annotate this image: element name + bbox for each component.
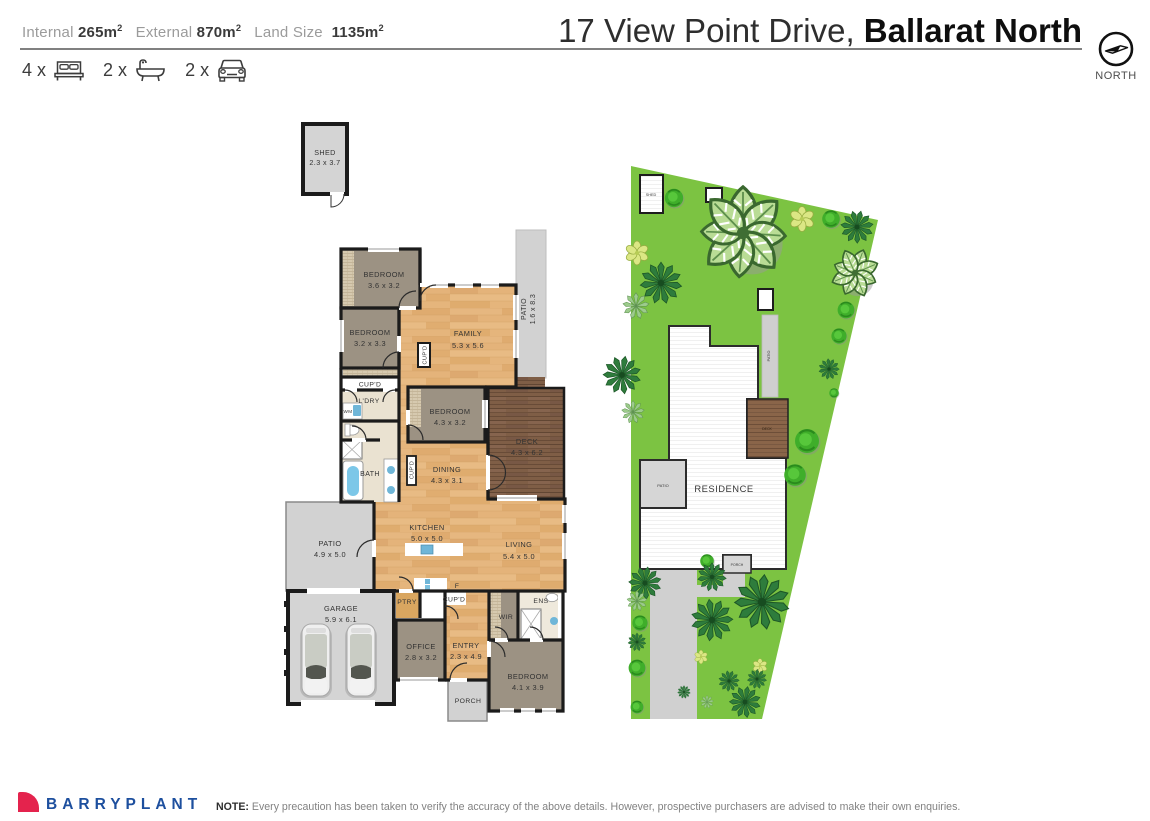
svg-text:PATIO: PATIO <box>767 351 771 362</box>
svg-text:GARAGE: GARAGE <box>324 604 358 613</box>
svg-text:CUP'D: CUP'D <box>423 346 429 365</box>
svg-text:4.3 x 3.2: 4.3 x 3.2 <box>434 418 466 427</box>
svg-text:4.9 x 5.0: 4.9 x 5.0 <box>314 550 346 559</box>
svg-text:WM: WM <box>344 409 353 414</box>
svg-text:BEDROOM: BEDROOM <box>430 407 471 416</box>
svg-text:BATH: BATH <box>360 471 380 478</box>
svg-text:ENS: ENS <box>533 598 548 605</box>
svg-text:WIR: WIR <box>499 614 513 621</box>
svg-text:PORCH: PORCH <box>455 698 482 705</box>
svg-text:SHED: SHED <box>314 148 336 157</box>
svg-text:DINING: DINING <box>433 465 461 474</box>
svg-text:F: F <box>455 583 460 590</box>
svg-text:PORCH: PORCH <box>731 563 744 567</box>
svg-text:BEDROOM: BEDROOM <box>364 270 405 279</box>
svg-text:CUP'D: CUP'D <box>443 597 466 604</box>
svg-text:BEDROOM: BEDROOM <box>350 328 391 337</box>
svg-text:2.3 x 3.7: 2.3 x 3.7 <box>309 158 340 167</box>
svg-text:5.9 x 6.1: 5.9 x 6.1 <box>325 615 357 624</box>
svg-text:BEDROOM: BEDROOM <box>508 672 549 681</box>
svg-text:DECK: DECK <box>762 427 772 431</box>
svg-text:5.3 x 5.6: 5.3 x 5.6 <box>452 341 484 350</box>
svg-text:3.6 x 3.2: 3.6 x 3.2 <box>368 281 400 290</box>
svg-text:4.3 x 6.2: 4.3 x 6.2 <box>511 448 543 457</box>
svg-text:ENTRY: ENTRY <box>453 641 480 650</box>
svg-text:CUP'D: CUP'D <box>359 382 382 389</box>
svg-text:2.8 x 3.2: 2.8 x 3.2 <box>405 653 437 662</box>
svg-text:PTRY: PTRY <box>397 599 417 606</box>
svg-text:OFFICE: OFFICE <box>406 642 436 651</box>
svg-text:SHED: SHED <box>646 193 657 197</box>
svg-text:L'DRY: L'DRY <box>358 398 379 405</box>
svg-text:KITCHEN: KITCHEN <box>409 523 444 532</box>
svg-text:PATIO: PATIO <box>318 539 341 548</box>
svg-text:4.3 x 3.1: 4.3 x 3.1 <box>431 476 463 485</box>
svg-text:5.4 x 5.0: 5.4 x 5.0 <box>503 552 535 561</box>
svg-text:CUP'D: CUP'D <box>410 461 416 479</box>
svg-text:2.3 x 4.9: 2.3 x 4.9 <box>450 652 482 661</box>
svg-text:DECK: DECK <box>516 437 538 446</box>
svg-text:4.1 x 3.9: 4.1 x 3.9 <box>512 683 544 692</box>
svg-text:PATIO: PATIO <box>657 483 668 488</box>
svg-text:PATIO: PATIO <box>521 298 528 320</box>
svg-text:LIVING: LIVING <box>506 540 533 549</box>
svg-text:FAMILY: FAMILY <box>454 329 482 338</box>
svg-text:RESIDENCE: RESIDENCE <box>694 483 753 494</box>
svg-text:1.6 x 8.3: 1.6 x 8.3 <box>530 294 537 324</box>
svg-text:3.2 x 3.3: 3.2 x 3.3 <box>354 339 386 348</box>
svg-text:5.0 x 5.0: 5.0 x 5.0 <box>411 534 443 543</box>
